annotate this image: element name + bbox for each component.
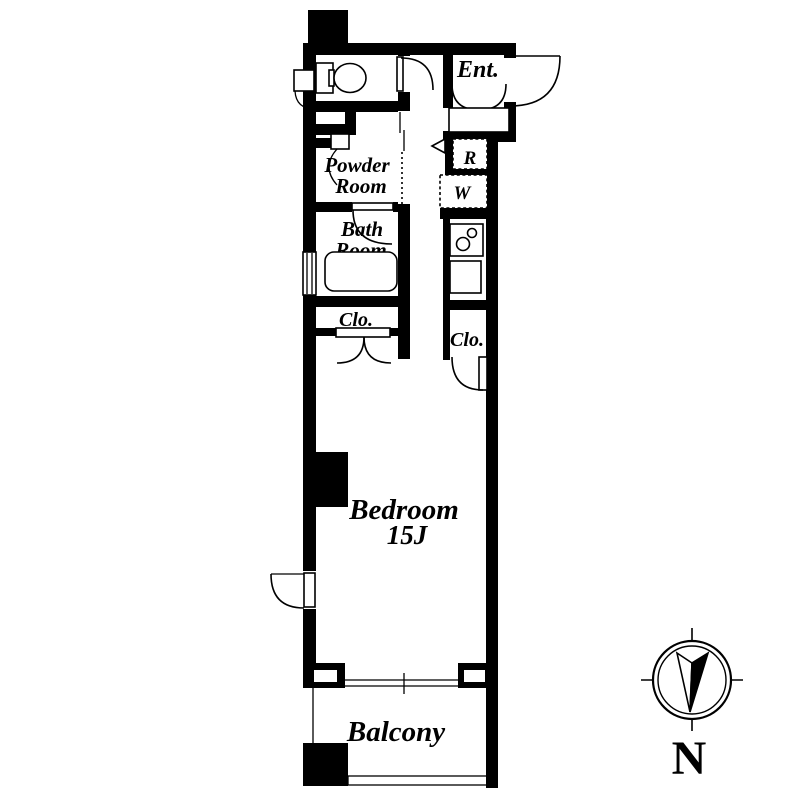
wall-closet-jamb-left bbox=[314, 328, 336, 336]
vanity bbox=[331, 134, 349, 149]
bath-door-leaf bbox=[352, 203, 393, 210]
north-label: N bbox=[672, 732, 707, 785]
balcony-label: Balcony bbox=[346, 716, 445, 748]
wall-right-outer bbox=[486, 142, 498, 788]
fridge-label: R bbox=[463, 148, 477, 169]
entrance-step bbox=[449, 108, 509, 132]
wall-closet-jamb-right bbox=[390, 328, 410, 336]
floor-plan: Ent. R W Powder Room Bath Room bbox=[0, 0, 800, 800]
wall-bath-closet bbox=[303, 296, 410, 307]
closet-kitchen-door-leaf bbox=[479, 357, 487, 390]
entrance-label: Ent. bbox=[456, 57, 499, 83]
toilet-window bbox=[294, 70, 314, 91]
wall-top-left-block bbox=[308, 10, 348, 43]
stub-left-pocket bbox=[314, 670, 337, 682]
stub-right-pocket bbox=[464, 670, 485, 682]
balcony-pillar bbox=[303, 743, 348, 786]
bathtub bbox=[325, 252, 397, 291]
stove bbox=[450, 224, 483, 256]
wall-closet-right-left bbox=[443, 310, 450, 360]
wall-entrance-left bbox=[443, 55, 453, 108]
bedroom-size-label: 15J bbox=[387, 520, 429, 550]
toilet-bowl bbox=[334, 64, 366, 93]
bedroom-pillar bbox=[310, 452, 348, 507]
wall-fridge-left bbox=[445, 138, 453, 169]
powder-open-edge bbox=[398, 151, 410, 204]
closet-hall-door-leaves bbox=[336, 328, 390, 337]
toilet-door-leaf bbox=[397, 57, 403, 91]
washer-label: W bbox=[454, 183, 472, 204]
bath-window bbox=[303, 252, 316, 295]
powder-label-line2: Room bbox=[334, 174, 386, 198]
wall-shaft-bar2 bbox=[311, 138, 333, 148]
closet-kitchen-label: Clo. bbox=[450, 329, 484, 351]
wall-toilet-bottom bbox=[303, 101, 410, 112]
wall-kitchen-left bbox=[443, 219, 450, 310]
kitchen-sink bbox=[450, 261, 481, 293]
bedroom-door-leaf bbox=[304, 573, 315, 607]
